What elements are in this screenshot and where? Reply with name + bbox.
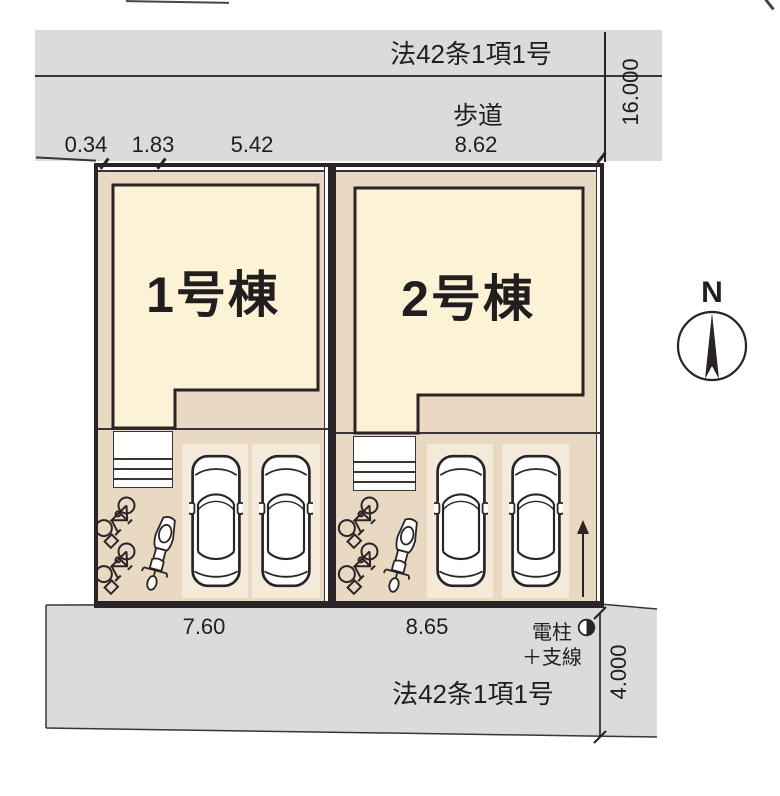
utility-pole-sublabel: ＋支線 (505, 641, 582, 670)
top-road-law-label: 法42条1項1号 (366, 34, 576, 71)
porch-step-line (114, 468, 172, 470)
lot-2-building-label: 2号棟 (336, 259, 600, 331)
porch-step-line (354, 461, 415, 463)
lot-1-porch-steps (113, 431, 173, 488)
bottom-road-width-dim: 4.000 (607, 627, 631, 717)
dim-5-42: 5.42 (222, 132, 282, 158)
compass-icon (672, 308, 754, 388)
site-plan: 法42条1項1号 歩道 0.34 1.83 5.42 8.62 16.000 7… (0, 0, 780, 796)
top-road-sidewalk-label: 歩道 (428, 96, 528, 132)
porch-step-line (354, 471, 415, 473)
top-road-width-dim: 16.000 (619, 47, 643, 137)
lot-2-car-2 (509, 449, 563, 593)
lot-2-ground: 2号棟 (336, 167, 600, 601)
dim-1-83: 1.83 (123, 132, 183, 158)
top-edge-artifact-line (126, 0, 229, 4)
top-road-dim-line (604, 32, 606, 162)
frontage-lot1: 7.60 (169, 614, 239, 640)
lot-1-car-1 (189, 449, 243, 593)
top-road-carriage-sidewalk-divider (35, 75, 662, 77)
compass-north-label: N (692, 276, 732, 310)
porch-step-line (114, 478, 172, 480)
porch-step-line (114, 458, 172, 460)
bottom-road-law-label: 法42条1項1号 (368, 674, 578, 711)
lot-2: 2号棟 (332, 163, 604, 608)
access-arrow-head (577, 520, 589, 534)
porch-step-line (354, 481, 415, 483)
bottom-road (35, 596, 667, 746)
lot-1: 1号棟 (94, 163, 332, 608)
top-right-artifact (764, 0, 774, 10)
lot-1-car-2 (259, 449, 313, 593)
utility-pole-icon (577, 618, 596, 637)
dim-0-34: 0.34 (56, 132, 116, 158)
frontage-lot2: 8.65 (392, 614, 462, 640)
lot-1-building-label: 1号棟 (98, 255, 328, 327)
access-arrow-shaft (582, 533, 584, 597)
dim-8-62: 8.62 (446, 132, 506, 158)
lot-2-car-1 (434, 449, 488, 593)
lot-2-porch-steps (353, 436, 416, 491)
lot-1-ground: 1号棟 (98, 167, 328, 601)
